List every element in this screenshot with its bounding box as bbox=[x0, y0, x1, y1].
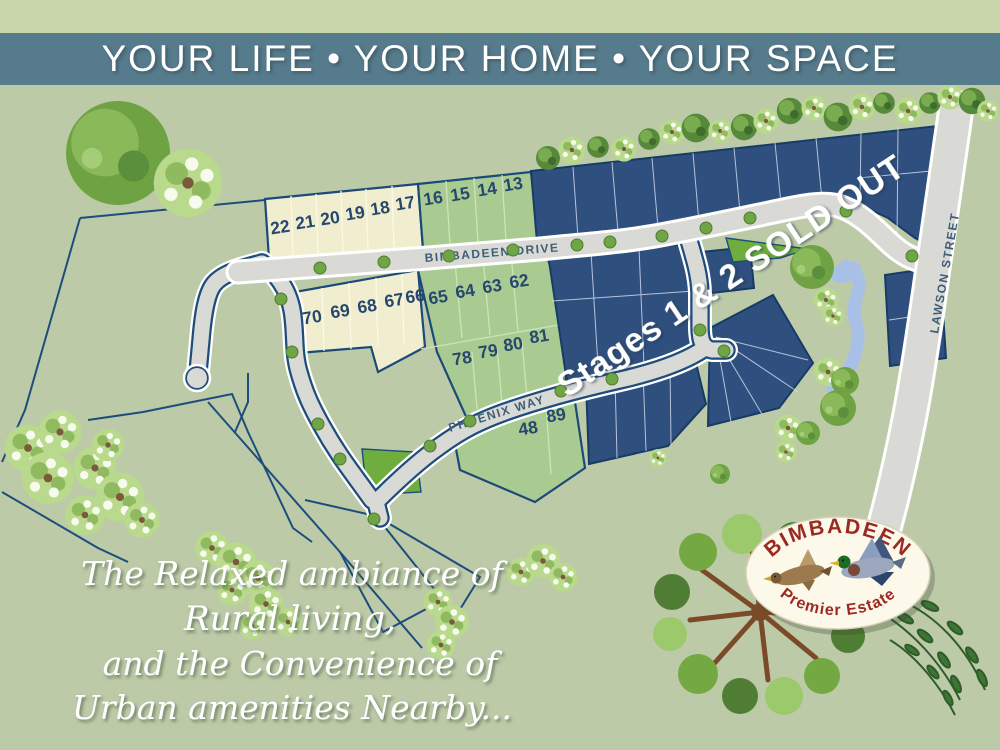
tree-icon bbox=[824, 103, 853, 132]
tree-icon bbox=[977, 100, 999, 122]
lot-label: 62 bbox=[508, 270, 531, 293]
lot-label: 79 bbox=[477, 340, 500, 363]
tree-icon bbox=[937, 85, 962, 110]
tree-icon bbox=[682, 114, 711, 143]
tree-icon bbox=[820, 390, 856, 426]
tree-icon bbox=[659, 119, 684, 144]
lot-label: 21 bbox=[294, 211, 317, 234]
tree-icon bbox=[638, 128, 660, 150]
lot-label: 67 bbox=[383, 289, 405, 312]
lot-label: 63 bbox=[481, 275, 504, 298]
lot-label: 66 bbox=[404, 285, 427, 308]
lot-label: 20 bbox=[319, 207, 342, 230]
tree-icon bbox=[777, 98, 803, 124]
header-banner: YOUR LIFE • YOUR HOME • YOUR SPACE bbox=[0, 33, 1000, 87]
tree-icon bbox=[92, 429, 124, 461]
tagline-line1: The Relaxed ambiance of bbox=[81, 554, 509, 593]
tree-icon bbox=[154, 149, 222, 217]
tree-icon bbox=[822, 305, 844, 327]
tree-icon bbox=[559, 137, 586, 164]
tagline-line3: and the Convenience of bbox=[103, 644, 504, 683]
tree-icon bbox=[710, 464, 730, 484]
lot-label: 68 bbox=[356, 295, 379, 318]
lot-label: 13 bbox=[502, 173, 525, 196]
lot-label: 65 bbox=[427, 286, 450, 309]
tree-icon bbox=[649, 449, 667, 467]
lot-label: 17 bbox=[394, 192, 416, 215]
lot-label: 89 bbox=[545, 404, 568, 427]
tree-icon bbox=[587, 136, 609, 158]
lot-label: 70 bbox=[301, 306, 324, 329]
page-title: YOUR LIFE • YOUR HOME • YOUR SPACE bbox=[101, 38, 898, 80]
lot-label: 64 bbox=[454, 280, 477, 303]
tagline-line2: Rural living, bbox=[183, 599, 396, 639]
tree-icon bbox=[801, 95, 826, 120]
lot-label: 22 bbox=[269, 216, 292, 239]
tagline-line4: Urban amenities Nearby... bbox=[72, 688, 512, 727]
estate-flyer: YOUR LIFE • YOUR HOME • YOUR SPACE bbox=[0, 0, 1000, 750]
lot-label: 81 bbox=[528, 325, 551, 348]
tree-icon bbox=[611, 136, 636, 161]
tree-icon bbox=[873, 92, 895, 114]
tree-icon bbox=[708, 119, 731, 142]
lot-label: 48 bbox=[517, 417, 540, 440]
tree-icon bbox=[849, 94, 876, 121]
tree-icon bbox=[753, 108, 778, 133]
lot-label: 16 bbox=[422, 187, 445, 210]
tree-icon bbox=[796, 421, 820, 445]
tree-icon bbox=[895, 98, 922, 125]
top-strip bbox=[0, 0, 1000, 33]
lot-label: 18 bbox=[369, 197, 392, 220]
tree-icon bbox=[731, 114, 757, 140]
lot-label: 78 bbox=[451, 347, 474, 370]
tree-icon bbox=[124, 502, 160, 538]
tree-icon bbox=[549, 563, 578, 592]
lot-label: 69 bbox=[329, 300, 352, 323]
tree-icon bbox=[22, 452, 74, 504]
tree-icon bbox=[775, 441, 797, 463]
tree-icon bbox=[66, 101, 170, 205]
estate-map: BIMBADEEN DRIVE PHOENIX WAY LAWSON STREE… bbox=[0, 85, 1000, 750]
lot-label: 80 bbox=[502, 333, 525, 356]
lot-label: 15 bbox=[449, 183, 472, 206]
tree-icon bbox=[536, 146, 560, 170]
tree-icon bbox=[38, 410, 81, 453]
tree-icon bbox=[65, 495, 105, 535]
lot-label: 14 bbox=[476, 178, 499, 201]
lot-label: 19 bbox=[344, 202, 367, 225]
